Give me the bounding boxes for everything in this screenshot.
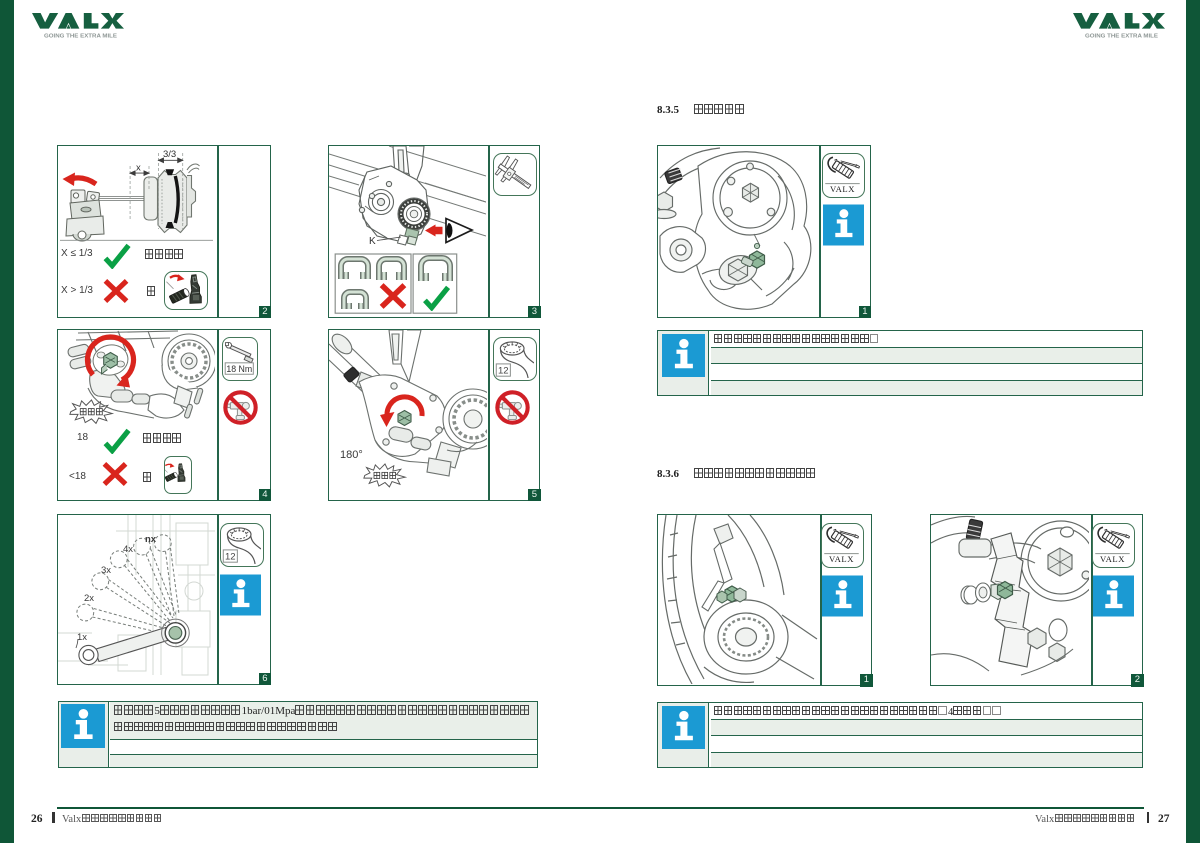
svg-text:3/3: 3/3 — [163, 149, 176, 160]
svg-text:GOING THE EXTRA MILE: GOING THE EXTRA MILE — [1085, 34, 1158, 40]
svg-text:K: K — [369, 236, 376, 247]
svg-text:x: x — [136, 163, 141, 174]
svg-text:GOING THE EXTRA MILE: GOING THE EXTRA MILE — [44, 34, 117, 40]
